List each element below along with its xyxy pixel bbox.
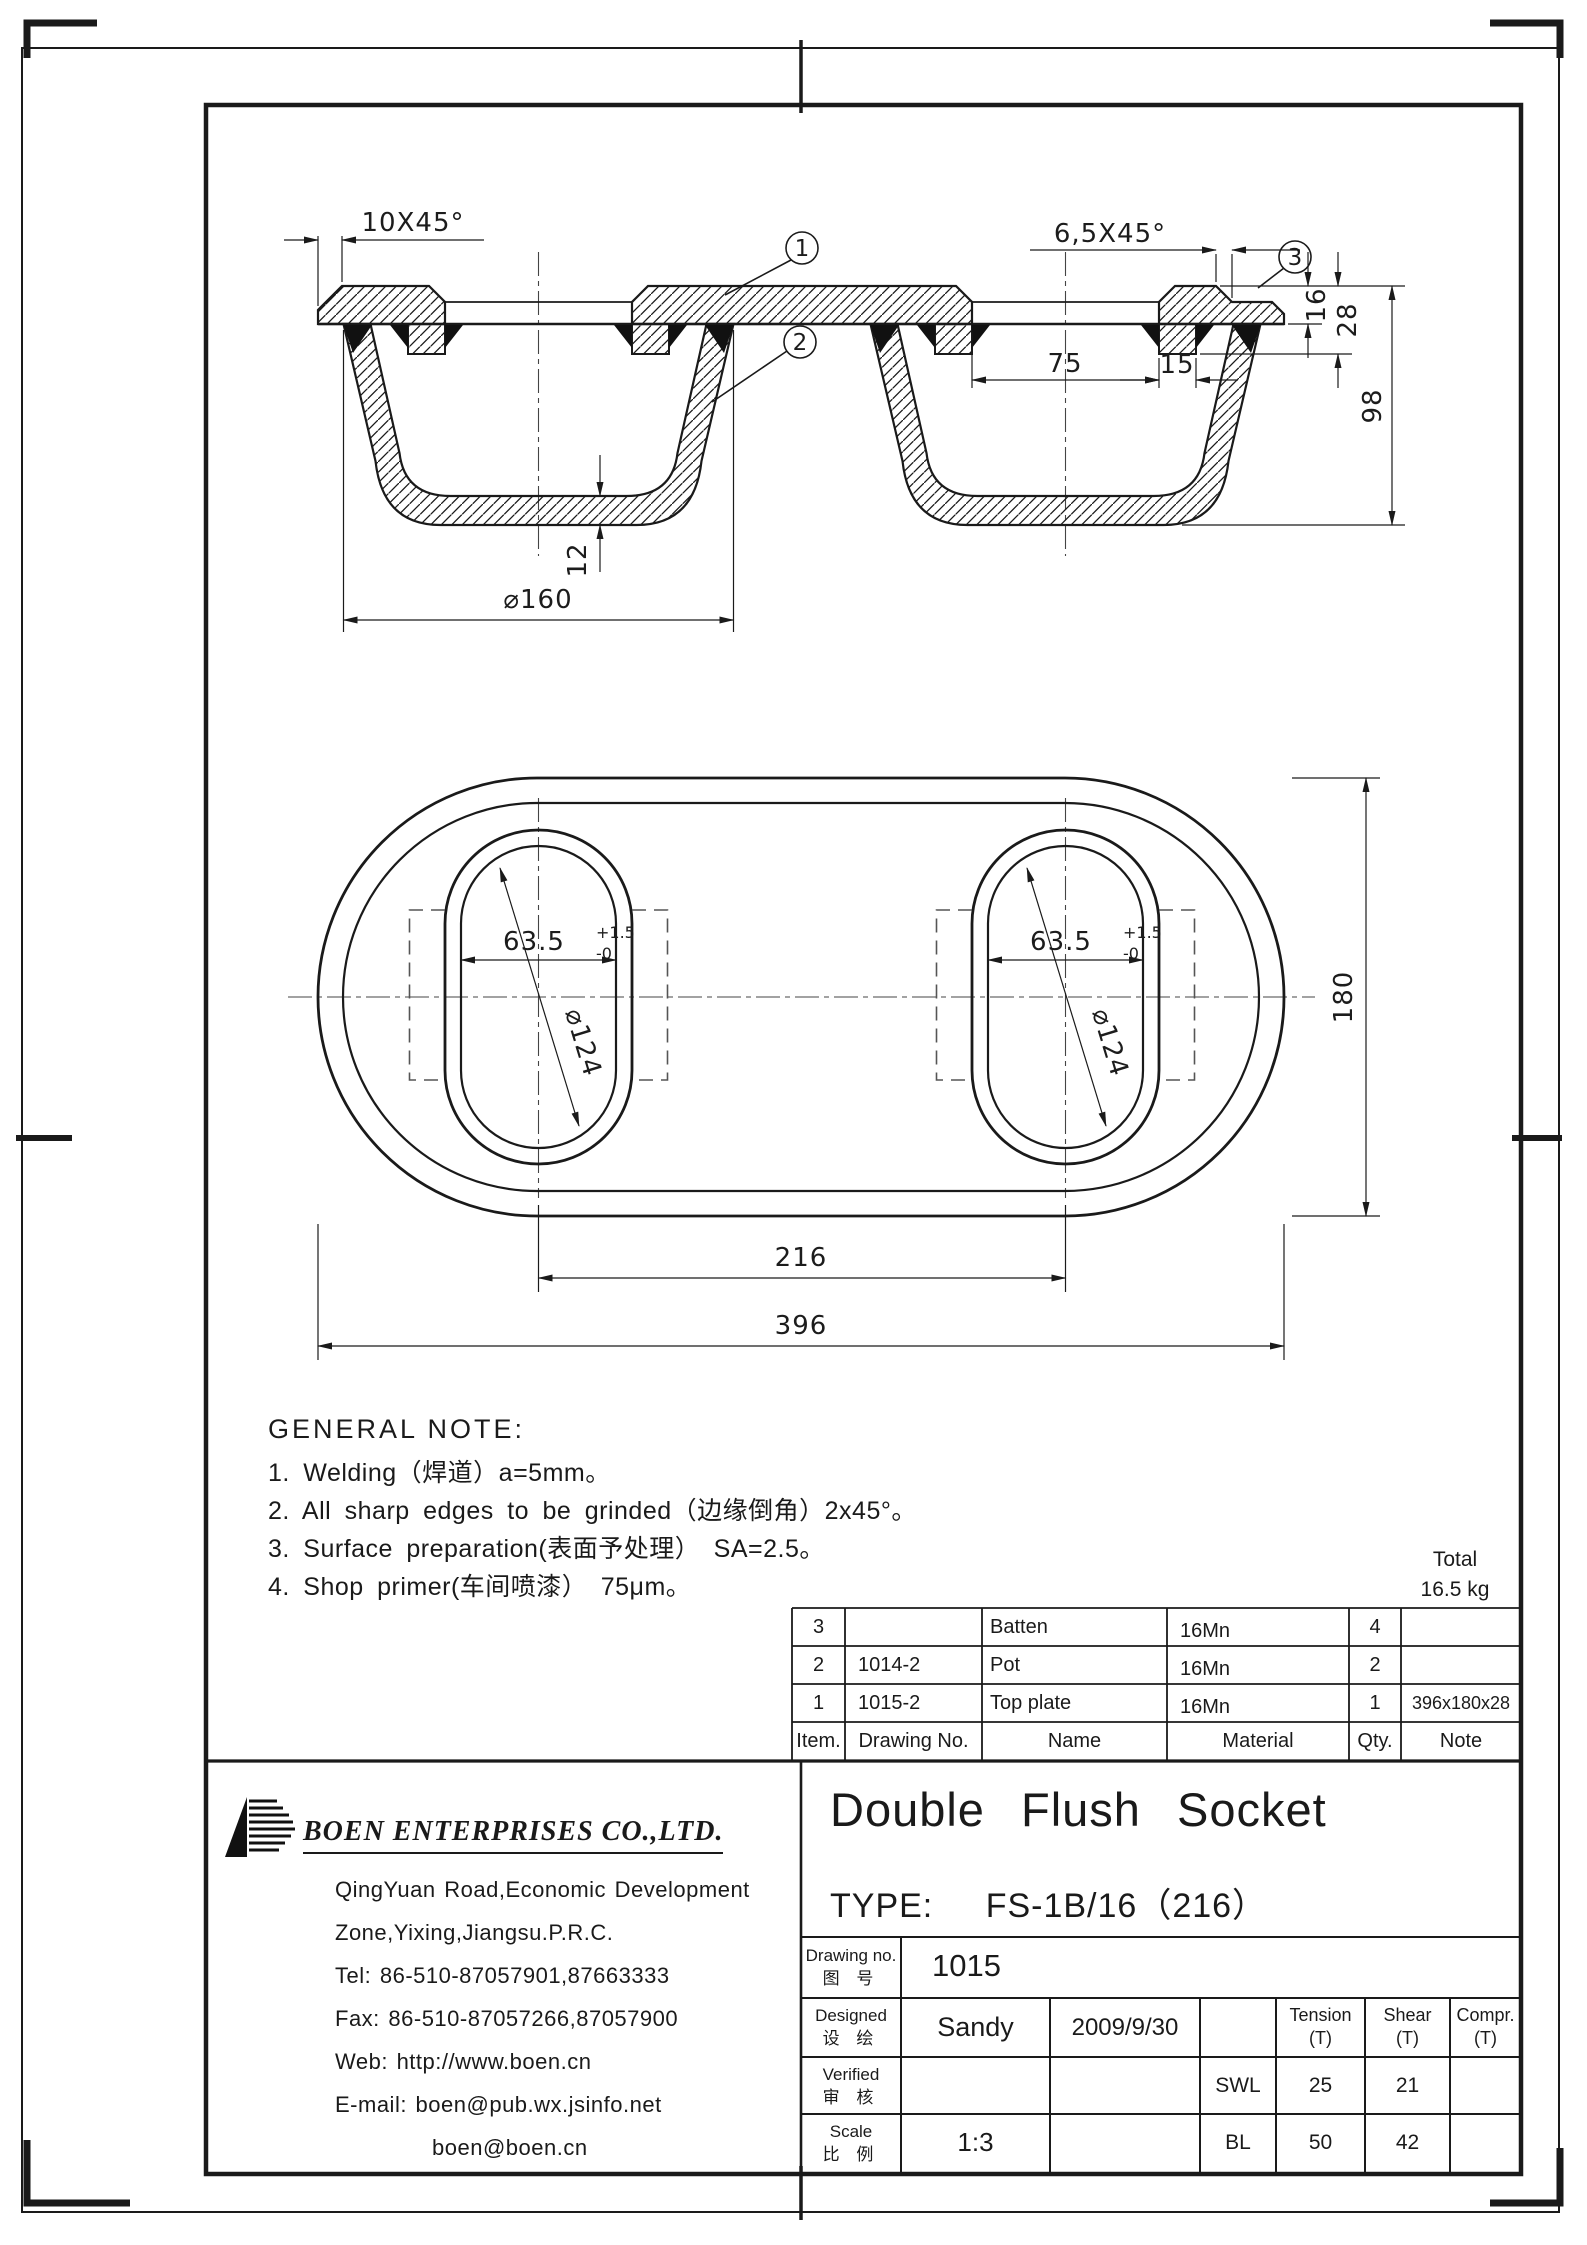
type-line: TYPE: FS-1B/16（216） (830, 1878, 1267, 1927)
dim-396: 396 (775, 1311, 828, 1341)
dim-pot-dia-left: ⌀124 (558, 1005, 607, 1080)
part-name: Batten (990, 1608, 1160, 1646)
callout-2-number: 2 (793, 330, 808, 356)
company-tel: Tel: 86-510-87057901,87663333 (335, 1963, 670, 1989)
dim-slot-tol-minus-left: -0 (596, 944, 612, 963)
company-web: Web: http://www.boen.cn (335, 2049, 591, 2075)
part-name: Pot (990, 1646, 1160, 1684)
verified-label: Verified 审 核 (801, 2063, 901, 2109)
part-drawing-no: 1015-2 (858, 1684, 978, 1722)
bl-shear: 42 (1365, 2114, 1450, 2171)
drawing-frame (206, 105, 1521, 2174)
parts-header-drawing-no: Drawing No. (845, 1722, 982, 1761)
part-item: 1 (792, 1684, 845, 1722)
dim-180: 180 (1329, 971, 1359, 1024)
notes-title: GENERAL NOTE: (268, 1414, 525, 1445)
dim-216: 216 (775, 1243, 828, 1273)
compr-header: Compr. (T) (1450, 2004, 1521, 2050)
bl-label: BL (1200, 2114, 1276, 2171)
plan-view: 63.5 +1.5 -0 63.5 +1.5 -0 ⌀124 ⌀124 216 … (288, 778, 1380, 1360)
plate-left-block (318, 286, 445, 324)
part-item: 3 (792, 1608, 845, 1646)
part-material: 16Mn (1180, 1688, 1342, 1726)
part-item: 2 (792, 1646, 845, 1684)
company-fax: Fax: 86-510-87057266,87057900 (335, 2006, 678, 2032)
part-drawing-no: 1014-2 (858, 1646, 978, 1684)
total-value: 16.5 kg (1393, 1578, 1517, 1602)
dim-75: 75 (1047, 349, 1082, 379)
dim-slot-tol-plus-left: +1.5 (596, 923, 635, 942)
swl-shear: 21 (1365, 2057, 1450, 2114)
corner-mark-top-left (27, 23, 97, 58)
part-material: 16Mn (1180, 1650, 1342, 1688)
company-name: BOEN ENTERPRISES CO.,LTD. (303, 1816, 723, 1854)
parts-header-qty: Qty. (1349, 1722, 1401, 1761)
drawing-no-label: Drawing no. 图 号 (801, 1944, 901, 1990)
dim-slot-tol-plus-right: +1.5 (1123, 923, 1162, 942)
product-title: Double Flush Socket (830, 1782, 1327, 1837)
type-label: TYPE: (830, 1887, 933, 1925)
dim-chamfer-right: 6,5X45° (1054, 219, 1166, 249)
note-item-2: 2. All sharp edges to be grinded（边缘倒角）2x… (268, 1491, 917, 1527)
corner-mark-top-right (1490, 23, 1560, 58)
callout-3-number: 3 (1288, 245, 1303, 271)
drawing-sheet: 1 2 3 (0, 0, 1587, 2245)
plate-right-block (1159, 286, 1284, 324)
parts-header-note: Note (1401, 1722, 1521, 1761)
shear-header: Shear (T) (1365, 2004, 1450, 2050)
part-qty: 1 (1349, 1684, 1401, 1722)
plate-middle-block (632, 286, 972, 324)
parts-header-item: Item. (792, 1722, 845, 1761)
design-date: 2009/9/30 (1050, 1998, 1200, 2057)
bl-tension: 50 (1276, 2114, 1365, 2171)
drawing-lineart: 1 2 3 (0, 0, 1587, 2245)
part-note: 396x180x28 (1401, 1684, 1521, 1722)
swl-tension: 25 (1276, 2057, 1365, 2114)
designed-label: Designed 设 绘 (801, 2004, 901, 2050)
company-email-2: boen@boen.cn (432, 2135, 588, 2161)
company-email: E-mail: boen@pub.wx.jsinfo.net (335, 2092, 662, 2118)
dim-98: 98 (1358, 388, 1388, 423)
dim-chamfer-left: 10X45° (362, 208, 465, 238)
designer-name: Sandy (901, 1998, 1050, 2057)
parts-header-material: Material (1167, 1722, 1349, 1761)
type-value: FS-1B/16（216） (986, 1887, 1267, 1925)
company-address-1: QingYuan Road,Economic Development (335, 1877, 750, 1903)
note-item-3: 3. Surface preparation(表面予处理） SA=2.5。 (268, 1529, 825, 1565)
note-item-4: 4. Shop primer(车间喷漆） 75μm。 (268, 1567, 691, 1603)
company-address-2: Zone,Yixing,Jiangsu.P.R.C. (335, 1920, 613, 1946)
part-qty: 2 (1349, 1646, 1401, 1684)
top-plate-section (318, 286, 1284, 324)
scale-value: 1:3 (901, 2114, 1050, 2171)
tension-header: Tension (T) (1276, 2004, 1365, 2050)
batten (935, 324, 972, 354)
corner-mark-bottom-left (27, 2140, 130, 2203)
scale-label: Scale 比 例 (801, 2120, 901, 2166)
part-material: 16Mn (1180, 1612, 1342, 1650)
dim-15: 15 (1159, 350, 1194, 380)
dim-slot-width-right: 63.5 (1030, 927, 1092, 957)
plan-dim-lines (318, 778, 1380, 1360)
part-qty: 4 (1349, 1608, 1401, 1646)
dim-pot-dia-right: ⌀124 (1085, 1005, 1134, 1080)
dim-16: 16 (1302, 287, 1332, 322)
dim-28: 28 (1333, 302, 1363, 337)
outer-border (22, 48, 1559, 2212)
section-view: 1 2 3 (284, 208, 1405, 632)
company-logo (225, 1795, 297, 1857)
dim-12: 12 (563, 542, 593, 577)
dim-slot-tol-minus-right: -0 (1123, 944, 1139, 963)
total-label: Total (1400, 1548, 1510, 1572)
batten (632, 324, 669, 354)
part-name: Top plate (990, 1684, 1160, 1722)
dim-slot-width-left: 63.5 (503, 927, 565, 957)
parts-header-name: Name (982, 1722, 1167, 1761)
note-item-1: 1. Welding（焊道）a=5mm。 (268, 1453, 611, 1489)
plan-centerlines (288, 798, 1315, 1198)
batten (408, 324, 445, 354)
drawing-no-value: 1015 (932, 1948, 1001, 1984)
swl-label: SWL (1200, 2057, 1276, 2114)
dim-160: ⌀160 (503, 585, 572, 615)
callout-1-number: 1 (795, 236, 810, 262)
callout-3-leader (1258, 268, 1284, 288)
